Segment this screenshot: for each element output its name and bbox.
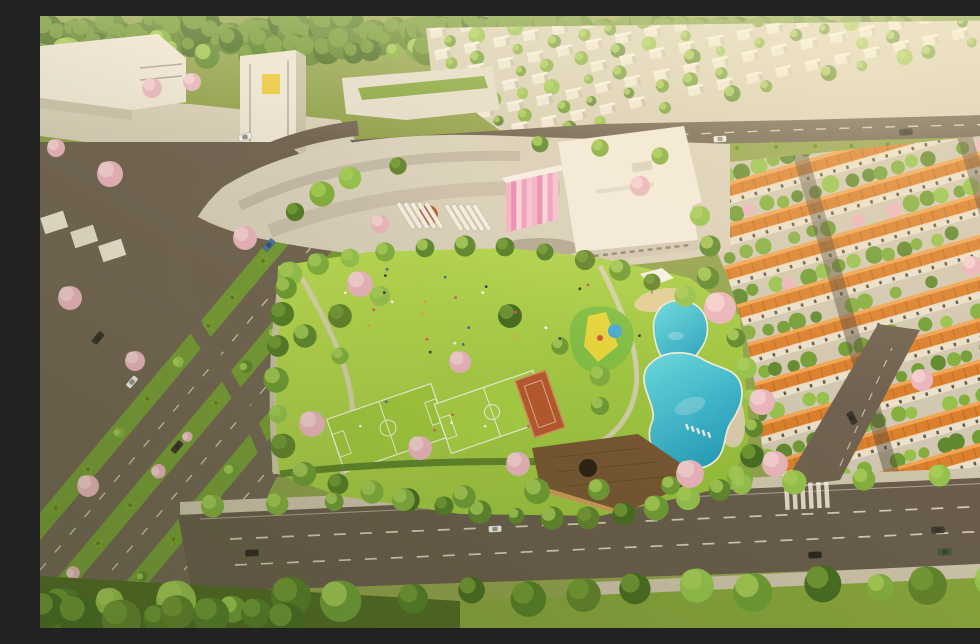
- render-canvas: [40, 16, 980, 628]
- aerial-render: [40, 16, 980, 628]
- vignette: [40, 16, 980, 628]
